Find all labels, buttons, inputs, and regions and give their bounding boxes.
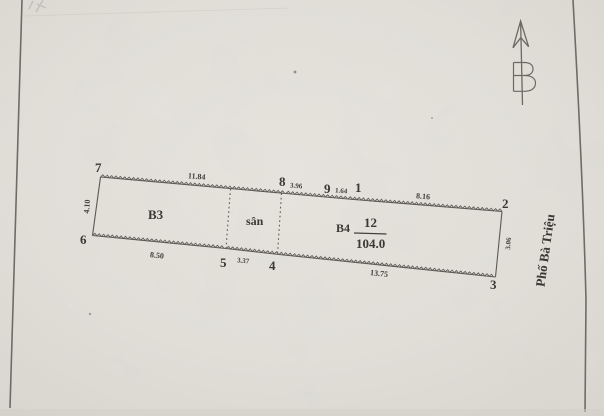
svg-text:11.84: 11.84 (188, 171, 206, 181)
svg-text:8: 8 (279, 174, 286, 189)
svg-text:3.37: 3.37 (237, 256, 251, 265)
svg-text:4: 4 (269, 258, 276, 273)
svg-text:3: 3 (490, 277, 497, 292)
svg-text:104.0: 104.0 (356, 236, 385, 251)
svg-text:3.96: 3.96 (290, 181, 303, 190)
svg-text:13.75: 13.75 (370, 268, 389, 279)
svg-text:1: 1 (355, 180, 362, 195)
svg-text:2: 2 (502, 196, 509, 211)
svg-text:B3: B3 (148, 207, 164, 222)
svg-text:3.06: 3.06 (504, 237, 513, 250)
svg-text:5: 5 (220, 255, 227, 270)
svg-text:1.64: 1.64 (335, 186, 348, 195)
svg-text:sân: sân (246, 214, 264, 228)
svg-text:B4: B4 (336, 221, 350, 235)
svg-text:7: 7 (95, 160, 102, 175)
svg-text:8.50: 8.50 (150, 250, 165, 260)
svg-text:8.16: 8.16 (416, 191, 431, 201)
svg-text:6: 6 (80, 232, 87, 247)
svg-text:4.10: 4.10 (82, 199, 92, 214)
svg-text:12: 12 (364, 215, 377, 230)
svg-text:9: 9 (324, 181, 331, 196)
